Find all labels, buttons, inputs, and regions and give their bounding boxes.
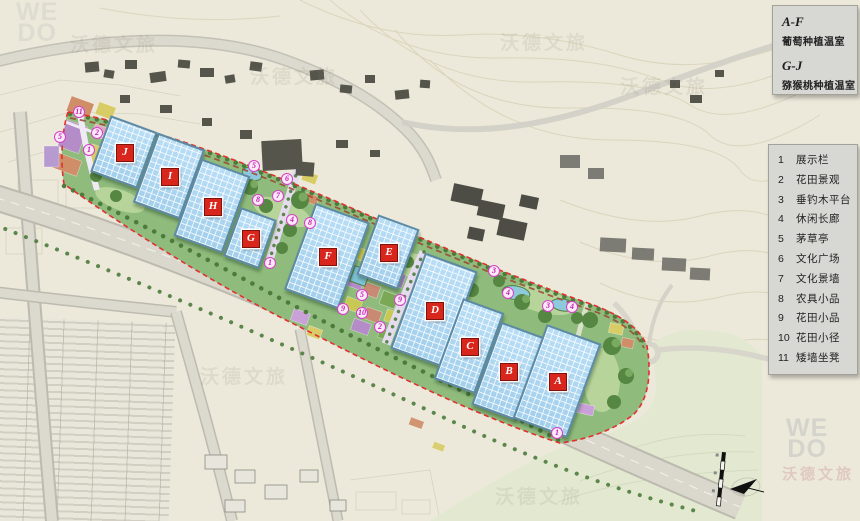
- site-plan-canvas: JIHGFEDCBA11251567848159910234341沃德文旅沃德文…: [0, 0, 860, 521]
- legend-item-5: 5茅草亭: [778, 230, 857, 250]
- legend-item-number: 11: [778, 349, 796, 369]
- legend-item-label: 茅草亭: [796, 230, 829, 250]
- facility-marker-10: 10: [356, 307, 368, 319]
- legend-item-label: 花田小径: [796, 329, 840, 349]
- legend-range-g-j: G-J: [782, 55, 857, 77]
- legend-item-label: 文化广场: [796, 250, 840, 270]
- greenhouse-label-F: F: [319, 248, 337, 266]
- facility-marker-1: 1: [551, 427, 563, 439]
- greenhouse-label-C: C: [461, 338, 479, 356]
- facility-marker-4: 4: [566, 301, 578, 313]
- legend-item-4: 4休闲长廊: [778, 210, 857, 230]
- facility-marker-2: 2: [91, 127, 103, 139]
- facility-marker-5: 5: [248, 160, 260, 172]
- legend-label-kiwi: 猕猴桃种植温室: [782, 77, 857, 99]
- legend-item-9: 9花田小品: [778, 309, 857, 329]
- facility-marker-1: 1: [83, 144, 95, 156]
- legend-label-grape: 葡萄种植温室: [782, 33, 857, 55]
- legend-item-number: 2: [778, 171, 796, 191]
- legend-item-label: 展示栏: [796, 151, 829, 171]
- legend-item-number: 1: [778, 151, 796, 171]
- legend-item-label: 花田小品: [796, 309, 840, 329]
- facility-marker-5: 5: [356, 289, 368, 301]
- legend-item-3: 3垂钓木平台: [778, 191, 857, 211]
- facility-marker-4: 4: [502, 287, 514, 299]
- greenhouse-label-B: B: [500, 363, 518, 381]
- facility-marker-8: 8: [252, 194, 264, 206]
- facility-marker-6: 6: [281, 173, 293, 185]
- facility-marker-5: 5: [54, 131, 66, 143]
- legend-item-1: 1展示栏: [778, 151, 857, 171]
- legend-item-2: 2花田景观: [778, 171, 857, 191]
- greenhouse-label-E: E: [380, 244, 398, 262]
- legend-item-label: 文化景墙: [796, 270, 840, 290]
- facility-marker-8: 8: [304, 217, 316, 229]
- legend-item-6: 6文化广场: [778, 250, 857, 270]
- greenhouse-label-I: I: [161, 168, 179, 186]
- legend-item-label: 垂钓木平台: [796, 191, 851, 211]
- facilities-legend: 1展示栏2花田景观3垂钓木平台4休闲长廊5茅草亭6文化广场7文化景墙8农具小品9…: [768, 144, 858, 375]
- greenhouse-label-H: H: [204, 198, 222, 216]
- legend-item-number: 5: [778, 230, 796, 250]
- legend-item-10: 10花田小径: [778, 329, 857, 349]
- facility-marker-3: 3: [488, 265, 500, 277]
- legend-item-number: 10: [778, 329, 796, 349]
- greenhouse-label-D: D: [426, 302, 444, 320]
- legend-item-7: 7文化景墙: [778, 270, 857, 290]
- facility-marker-9: 9: [394, 294, 406, 306]
- legend-item-number: 6: [778, 250, 796, 270]
- facility-marker-1: 1: [264, 257, 276, 269]
- legend-item-label: 矮墙坐凳: [796, 349, 840, 369]
- greenhouse-label-G: G: [242, 230, 260, 248]
- greenhouse-label-A: A: [549, 373, 567, 391]
- legend-item-8: 8农具小品: [778, 290, 857, 310]
- legend-range-a-f: A-F: [782, 11, 857, 33]
- legend-item-number: 9: [778, 309, 796, 329]
- legend-item-number: 7: [778, 270, 796, 290]
- facility-marker-9: 9: [337, 303, 349, 315]
- legend-item-number: 3: [778, 191, 796, 211]
- legend-item-label: 农具小品: [796, 290, 840, 310]
- legend-item-11: 11矮墙坐凳: [778, 349, 857, 369]
- legend-item-number: 8: [778, 290, 796, 310]
- facility-marker-4: 4: [286, 214, 298, 226]
- facility-marker-11: 11: [73, 106, 85, 118]
- facility-marker-3: 3: [542, 300, 554, 312]
- legend-item-number: 4: [778, 210, 796, 230]
- greenhouse-label-J: J: [116, 144, 134, 162]
- facility-marker-7: 7: [272, 190, 284, 202]
- greenhouse-type-legend: A-F 葡萄种植温室 G-J 猕猴桃种植温室: [772, 5, 858, 95]
- legend-item-label: 花田景观: [796, 171, 840, 191]
- facility-marker-2: 2: [374, 321, 386, 333]
- legend-item-label: 休闲长廊: [796, 210, 840, 230]
